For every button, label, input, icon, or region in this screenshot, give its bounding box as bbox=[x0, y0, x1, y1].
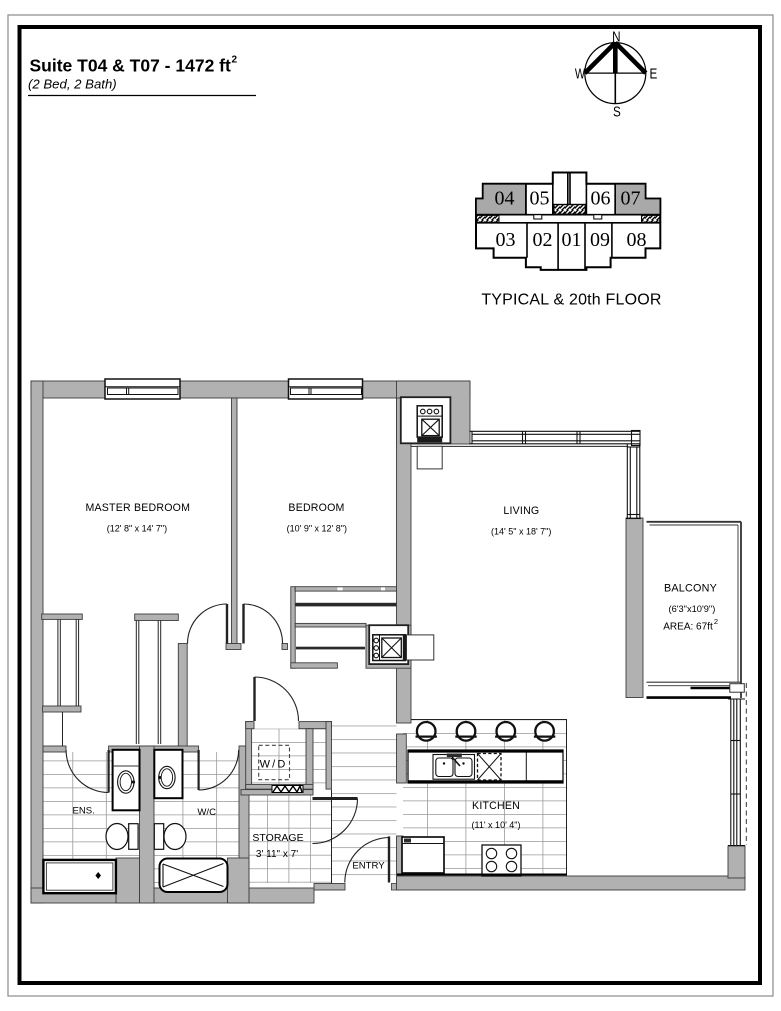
svg-text:07: 07 bbox=[621, 188, 641, 210]
svg-text:MASTER BEDROOM: MASTER BEDROOM bbox=[85, 502, 190, 514]
svg-text:06: 06 bbox=[591, 188, 611, 210]
svg-text:04: 04 bbox=[495, 188, 515, 210]
svg-text:Suite T04 & T07 - 1472 ft: Suite T04 & T07 - 1472 ft bbox=[30, 56, 231, 76]
svg-text:08: 08 bbox=[627, 229, 647, 251]
svg-text:AREA: 67ft: AREA: 67ft bbox=[663, 622, 713, 633]
svg-text:(11' x 10' 4"): (11' x 10' 4") bbox=[472, 820, 521, 830]
svg-text:STORAGE: STORAGE bbox=[252, 832, 303, 844]
svg-text:2: 2 bbox=[232, 55, 238, 66]
svg-text:01: 01 bbox=[562, 229, 582, 251]
svg-text:(12' 8" x 14' 7"): (12' 8" x 14' 7") bbox=[107, 524, 167, 534]
svg-text:BALCONY: BALCONY bbox=[664, 583, 717, 595]
svg-text:TYPICAL & 20th FLOOR: TYPICAL & 20th FLOOR bbox=[481, 292, 661, 309]
svg-text:ENTRY: ENTRY bbox=[352, 861, 385, 872]
svg-text:(2 Bed, 2 Bath): (2 Bed, 2 Bath) bbox=[28, 77, 117, 92]
svg-text:3' 11" x 7': 3' 11" x 7' bbox=[256, 849, 298, 860]
svg-text:05: 05 bbox=[530, 188, 550, 210]
svg-text:(6'3"x10'9"): (6'3"x10'9") bbox=[668, 604, 715, 614]
svg-text:S: S bbox=[613, 103, 621, 120]
svg-text:ENS.: ENS. bbox=[72, 806, 94, 817]
svg-text:W: W bbox=[575, 65, 586, 82]
svg-text:W/C: W/C bbox=[197, 807, 216, 818]
svg-text:BEDROOM: BEDROOM bbox=[288, 502, 344, 514]
svg-text:(14' 5" x 18' 7"): (14' 5" x 18' 7") bbox=[491, 527, 551, 537]
svg-text:(10' 9" x 12' 8"): (10' 9" x 12' 8") bbox=[287, 524, 347, 534]
svg-text:N: N bbox=[612, 28, 620, 45]
svg-text:LIVING: LIVING bbox=[503, 505, 539, 517]
svg-text:03: 03 bbox=[496, 229, 516, 251]
svg-text:02: 02 bbox=[533, 229, 553, 251]
svg-text:2: 2 bbox=[714, 617, 718, 626]
svg-text:E: E bbox=[649, 65, 657, 82]
svg-text:W / D: W / D bbox=[260, 759, 286, 771]
svg-text:KITCHEN: KITCHEN bbox=[472, 800, 520, 812]
svg-text:09: 09 bbox=[590, 229, 610, 251]
